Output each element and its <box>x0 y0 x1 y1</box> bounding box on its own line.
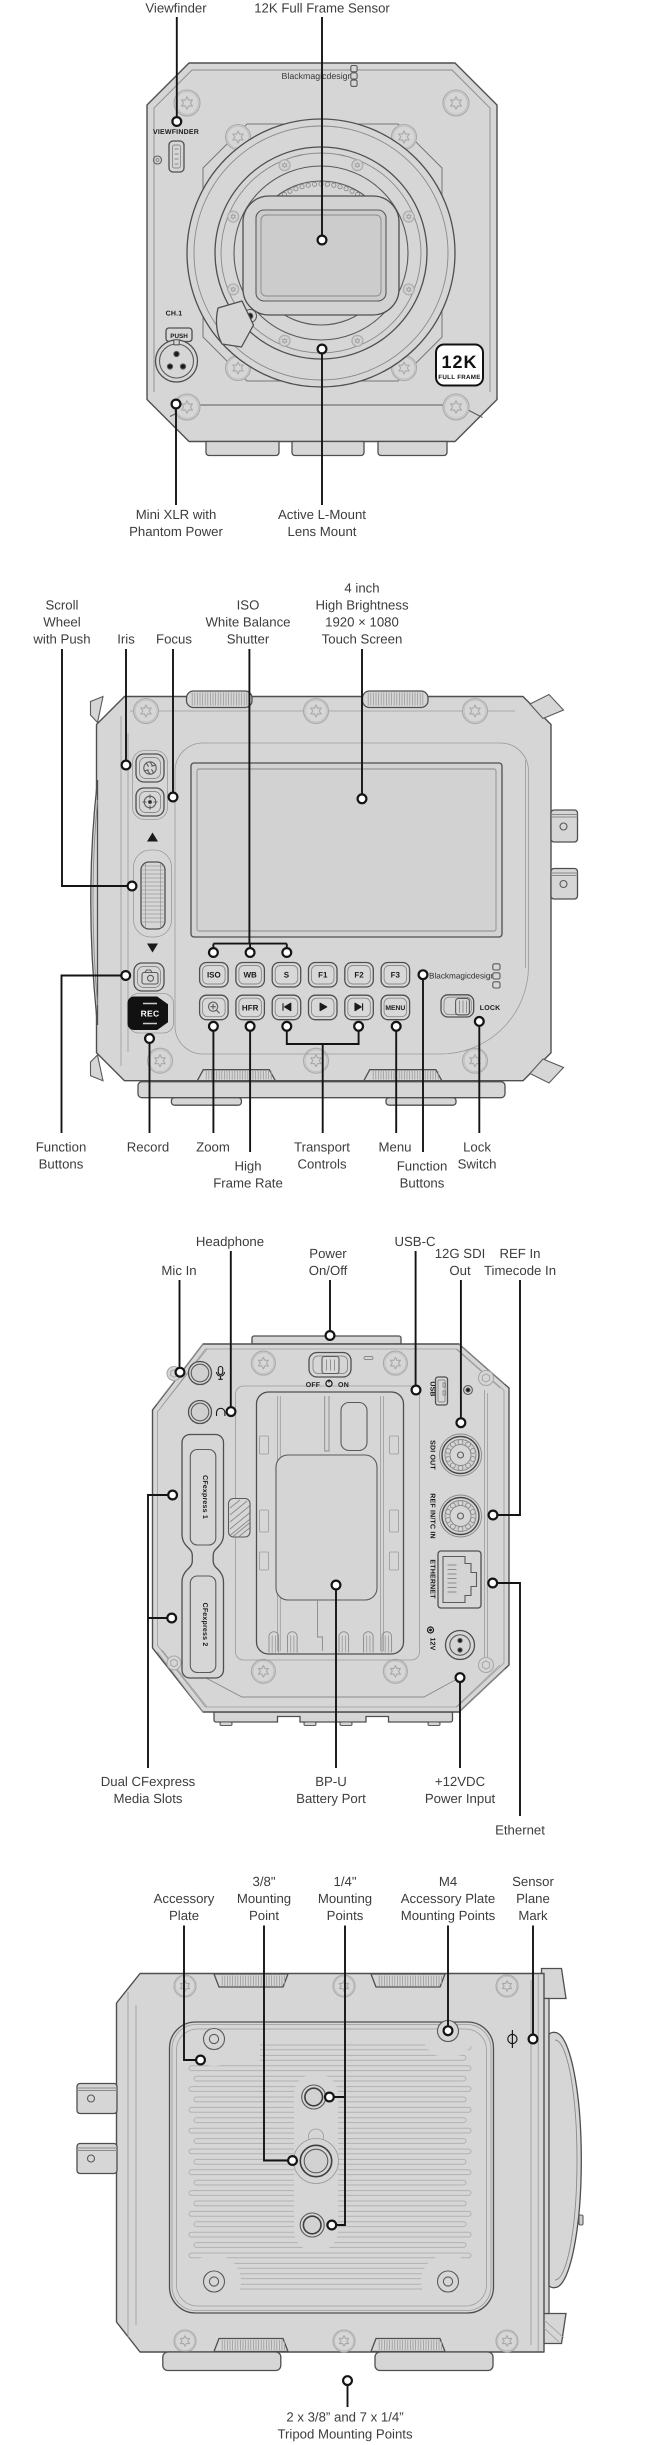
svg-text:Battery Port: Battery Port <box>296 1791 366 1806</box>
svg-text:Dual CFexpress: Dual CFexpress <box>101 1774 196 1789</box>
svg-text:Sensor: Sensor <box>512 1874 554 1889</box>
svg-text:CH.1: CH.1 <box>166 311 183 318</box>
svg-text:Timecode In: Timecode In <box>484 1263 556 1278</box>
svg-text:+12VDC: +12VDC <box>435 1774 486 1789</box>
svg-text:Function: Function <box>397 1159 448 1174</box>
svg-text:Blackmagicdesign: Blackmagicdesign <box>282 71 353 81</box>
svg-text:Accessory Plate: Accessory Plate <box>401 1891 496 1906</box>
svg-text:12K Full Frame Sensor: 12K Full Frame Sensor <box>254 1 390 16</box>
svg-text:Controls: Controls <box>297 1157 347 1172</box>
svg-text:OFF: OFF <box>306 1382 321 1389</box>
svg-text:Mounting: Mounting <box>318 1891 372 1906</box>
svg-text:F3: F3 <box>391 971 401 980</box>
svg-text:Mic In: Mic In <box>161 1263 196 1278</box>
svg-text:Function: Function <box>36 1140 87 1155</box>
svg-text:Buttons: Buttons <box>39 1157 84 1172</box>
svg-text:Focus: Focus <box>156 632 192 647</box>
svg-text:REC: REC <box>141 1009 160 1019</box>
svg-text:ISO: ISO <box>207 971 221 980</box>
svg-text:F2: F2 <box>354 971 364 980</box>
svg-text:Iris: Iris <box>117 632 135 647</box>
svg-text:Out: Out <box>449 1263 471 1278</box>
svg-text:Media Slots: Media Slots <box>114 1791 183 1806</box>
svg-text:4 inch: 4 inch <box>344 581 379 596</box>
svg-text:Point: Point <box>249 1908 279 1923</box>
svg-text:Lock: Lock <box>463 1140 491 1155</box>
svg-text:Buttons: Buttons <box>400 1176 445 1191</box>
svg-text:MENU: MENU <box>385 1005 405 1012</box>
svg-text:USB: USB <box>429 1381 436 1396</box>
svg-text:12K: 12K <box>441 352 477 372</box>
svg-text:Menu: Menu <box>379 1140 412 1155</box>
svg-text:Ethernet: Ethernet <box>495 1823 545 1838</box>
svg-text:ISO: ISO <box>237 598 260 613</box>
svg-text:REF IN/TC IN: REF IN/TC IN <box>429 1493 437 1539</box>
svg-text:Viewfinder: Viewfinder <box>145 1 207 16</box>
svg-text:Touch Screen: Touch Screen <box>322 632 403 647</box>
svg-text:ON: ON <box>338 1382 349 1389</box>
svg-text:Headphone: Headphone <box>196 1234 264 1249</box>
svg-text:Mark: Mark <box>518 1908 548 1923</box>
svg-text:1920 × 1080: 1920 × 1080 <box>325 615 399 630</box>
svg-text:ETHERNET: ETHERNET <box>429 1559 436 1599</box>
svg-text:USB-C: USB-C <box>394 1234 436 1249</box>
svg-text:Scroll: Scroll <box>46 598 79 613</box>
svg-text:Tripod Mounting Points: Tripod Mounting Points <box>277 2427 413 2442</box>
svg-text:BP-U: BP-U <box>315 1774 347 1789</box>
svg-text:High: High <box>234 1159 261 1174</box>
svg-text:Transport: Transport <box>294 1140 350 1155</box>
svg-text:LOCK: LOCK <box>480 1005 501 1012</box>
svg-text:CFexpress 1: CFexpress 1 <box>201 1475 208 1519</box>
svg-text:Record: Record <box>127 1140 170 1155</box>
svg-text:Plane: Plane <box>516 1891 550 1906</box>
svg-text:Power: Power <box>309 1246 347 1261</box>
svg-text:FULL FRAME: FULL FRAME <box>438 374 480 381</box>
svg-text:Power Input: Power Input <box>425 1791 496 1806</box>
svg-text:On/Off: On/Off <box>309 1263 348 1278</box>
svg-text:3/8": 3/8" <box>252 1874 275 1889</box>
svg-text:1/4": 1/4" <box>333 1874 356 1889</box>
svg-text:Shutter: Shutter <box>227 632 270 647</box>
svg-text:Switch: Switch <box>458 1157 497 1172</box>
svg-text:Mini XLR with: Mini XLR with <box>136 507 217 522</box>
svg-text:HFR: HFR <box>242 1003 259 1012</box>
svg-text:M4: M4 <box>439 1874 457 1889</box>
svg-text:Blackmagicdesign: Blackmagicdesign <box>429 971 495 980</box>
svg-text:12V: 12V <box>429 1637 436 1650</box>
svg-text:Accessory: Accessory <box>154 1891 215 1906</box>
svg-text:Plate: Plate <box>169 1908 199 1923</box>
svg-text:PUSH: PUSH <box>170 333 188 340</box>
svg-text:Wheel: Wheel <box>43 615 80 630</box>
svg-text:F1: F1 <box>318 971 328 980</box>
svg-text:REF In: REF In <box>499 1246 540 1261</box>
svg-text:Frame Rate: Frame Rate <box>213 1176 283 1191</box>
svg-text:Zoom: Zoom <box>196 1140 230 1155</box>
svg-text:Active L-Mount: Active L-Mount <box>278 507 366 522</box>
svg-text:VIEWFINDER: VIEWFINDER <box>153 129 199 136</box>
svg-text:Mounting Points: Mounting Points <box>401 1908 496 1923</box>
svg-text:with Push: with Push <box>32 632 90 647</box>
svg-text:High Brightness: High Brightness <box>315 598 408 613</box>
svg-text:White Balance: White Balance <box>205 615 290 630</box>
svg-text:S: S <box>284 971 290 980</box>
svg-text:Mounting: Mounting <box>237 1891 291 1906</box>
svg-text:Phantom Power: Phantom Power <box>129 524 223 539</box>
svg-text:2 x 3/8” and 7 x 1/4”: 2 x 3/8” and 7 x 1/4” <box>286 2410 403 2425</box>
svg-text:12G SDI: 12G SDI <box>435 1246 486 1261</box>
svg-text:Points: Points <box>327 1908 364 1923</box>
svg-text:CFexpress 2: CFexpress 2 <box>201 1603 208 1647</box>
svg-text:WB: WB <box>243 971 257 980</box>
svg-text:SDI OUT: SDI OUT <box>429 1440 436 1470</box>
svg-text:Lens Mount: Lens Mount <box>288 524 357 539</box>
